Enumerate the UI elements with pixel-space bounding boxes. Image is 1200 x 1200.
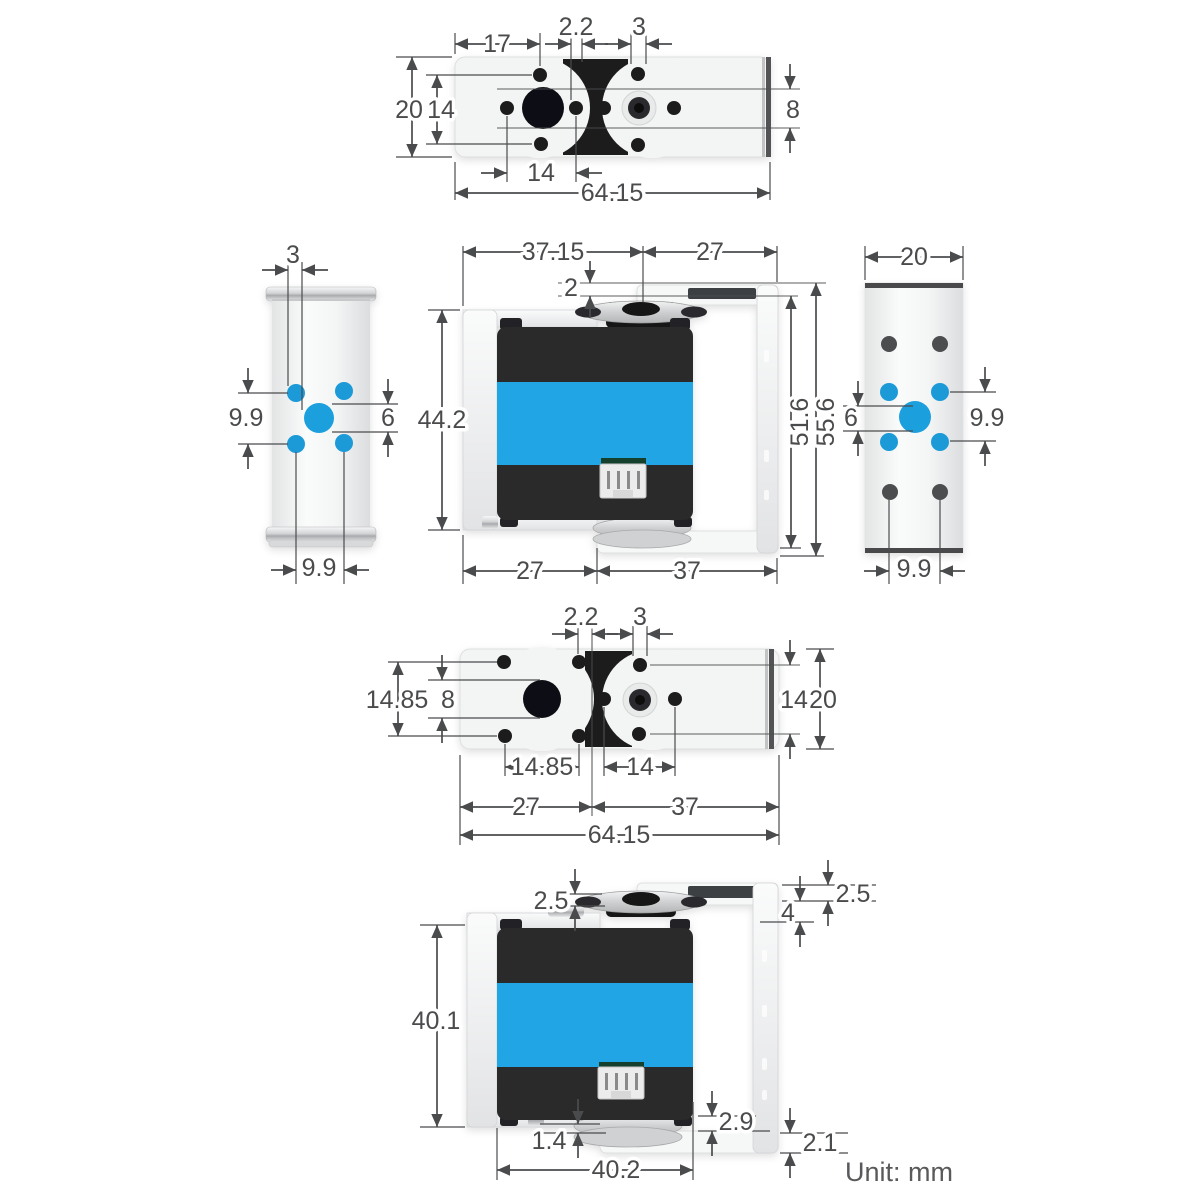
dim-label: 55.6 (812, 398, 840, 447)
bracket-side-bar (757, 285, 778, 553)
dim-label: 2 (564, 274, 578, 302)
arm-slot (688, 886, 756, 898)
unit-label: Unit: mm (845, 1157, 953, 1187)
servo-connector (600, 458, 646, 498)
dim-label: 8 (441, 686, 455, 714)
bracket-side-bar (753, 883, 778, 1153)
dim-label: 20 (900, 243, 928, 271)
dim-label: 14 (626, 753, 654, 781)
dim-label: 3 (632, 13, 646, 41)
plate-bottom-edge (865, 548, 963, 553)
dim-label: 40.1 (412, 1007, 461, 1035)
dim-label: 27 (516, 557, 544, 585)
edge-strip (766, 57, 771, 157)
dim-label: 27 (512, 793, 540, 821)
bottom-lip (269, 540, 373, 547)
hub-hole (635, 695, 645, 705)
dim-label: 14.85 (366, 686, 429, 714)
dim-label: 37 (671, 793, 699, 821)
dim-label: 3 (286, 241, 300, 269)
servo-blue-band (497, 983, 693, 1067)
dim-label: 9.9 (970, 404, 1005, 432)
assembly-part (463, 285, 778, 553)
dim-label: 14 (427, 96, 455, 124)
servo-body (497, 919, 693, 1126)
dim-label: 20 (809, 686, 837, 714)
dim-label: 2.2 (564, 603, 599, 631)
dim-label: 27 (696, 238, 724, 266)
top-view: 17 2.2 3 20 14 8 14 64.15 (395, 13, 800, 207)
bracket-part (455, 57, 771, 158)
top-cap (266, 287, 376, 301)
dimension-drawing: 17 2.2 3 20 14 8 14 64.15 (0, 0, 1200, 1200)
dim-label: 2.2 (559, 13, 594, 41)
dim-label: 37.15 (522, 238, 585, 266)
bracket-pin (482, 516, 498, 529)
dim-label: 9.9 (897, 555, 932, 583)
dim-label: 64.15 (588, 821, 651, 849)
dim-label: 2.1 (803, 1129, 838, 1157)
hub-hole (634, 103, 644, 113)
dim-label: 37 (673, 557, 701, 585)
horn-shaft (622, 892, 660, 906)
dim-label: 44.2 (418, 406, 467, 434)
dim-label: 6 (381, 404, 395, 432)
arm-slot (688, 288, 756, 299)
dim-label: 14.85 (511, 753, 574, 781)
dimension-drawing-canvas: 17 2.2 3 20 14 8 14 64.15 (0, 0, 1200, 1200)
servo-connector (598, 1062, 644, 1099)
dim-label: 1.4 (532, 1127, 567, 1155)
output-hole (523, 680, 561, 718)
dim-label: 2.5 (534, 887, 569, 915)
dim-label: 3 (633, 603, 647, 631)
dim-label: 8 (786, 96, 800, 124)
dim-label: 17 (483, 30, 511, 58)
dim-label: 2.9 (719, 1108, 754, 1136)
dim-label: 14 (527, 159, 555, 187)
output-hole (522, 87, 564, 129)
horn-shaft (622, 302, 660, 316)
bottom-top-view: 2.2 3 14.85 8 14 20 14.85 14 (366, 603, 837, 849)
dim-label: 64.15 (581, 179, 644, 207)
cylinder-part (266, 287, 376, 547)
dim-label: 40.2 (592, 1156, 641, 1184)
dim-label: 9.9 (302, 554, 337, 582)
plate-top-edge (865, 283, 963, 288)
right-side-view: 20 6 9.9 9.9 (843, 243, 1004, 584)
dim-label: 14 (780, 686, 808, 714)
edge-highlight (762, 57, 765, 157)
bottom-front-view: 2.5 2.5 4 40.1 2.9 1.4 2.1 (412, 860, 876, 1184)
front-view: 37.15 27 2 44.2 51.6 55.6 27 37 (418, 238, 840, 585)
dim-label: 6 (844, 404, 858, 432)
dim-label: 4 (781, 899, 795, 927)
servo-blue-band (497, 382, 693, 465)
dim-label: 51.6 (786, 398, 814, 447)
plate-part (865, 283, 963, 553)
dim-label: 2.5 (836, 880, 871, 908)
servo-body (497, 318, 693, 527)
dim-label: 9.9 (229, 404, 264, 432)
bracket-part (460, 647, 779, 751)
left-side-view: 3 9.9 6 9.9 (229, 241, 398, 584)
dim-label: 20 (395, 96, 423, 124)
